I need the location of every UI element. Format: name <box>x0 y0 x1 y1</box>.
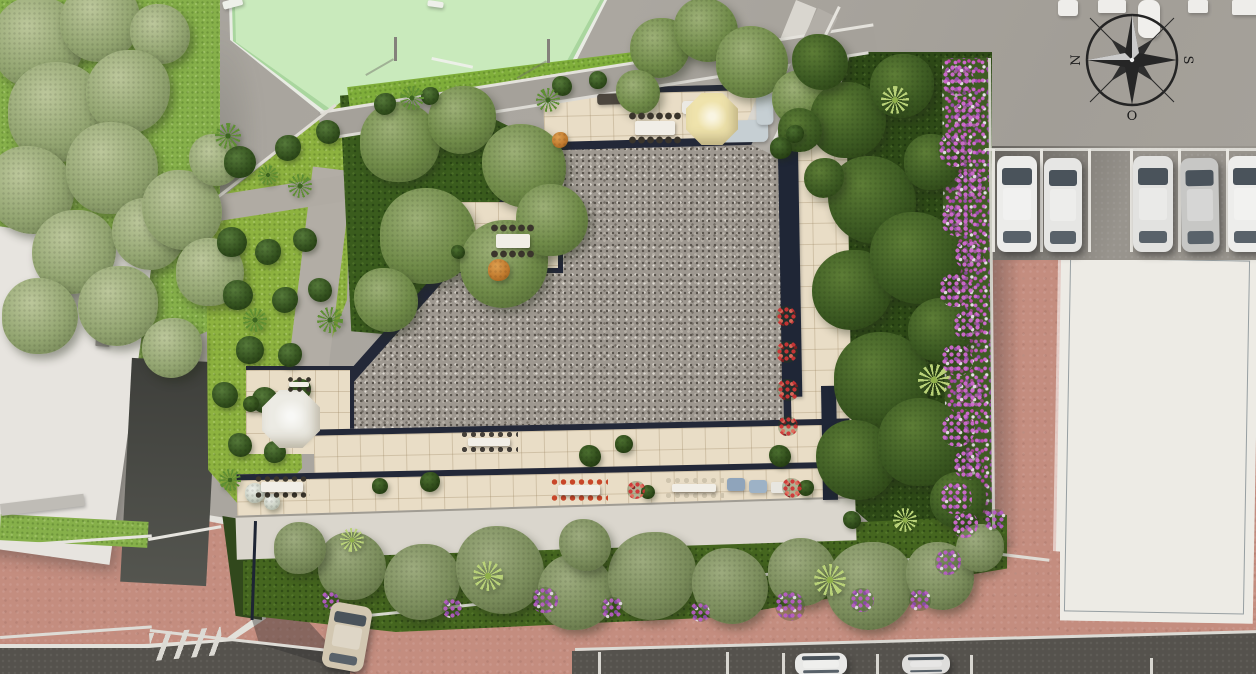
trimmed-bush <box>308 278 332 302</box>
trimmed-bush <box>236 336 264 364</box>
garden-flowers <box>775 591 805 621</box>
palm <box>243 308 267 332</box>
trimmed-bush <box>589 71 607 89</box>
sage-tree <box>86 50 170 134</box>
planter-shrub <box>769 445 791 467</box>
planter-shrub <box>615 435 633 453</box>
flower-border-cluster <box>940 482 972 514</box>
scene-rect <box>222 0 243 10</box>
car-window <box>1049 170 1077 186</box>
chairs <box>664 477 724 484</box>
aerial-site-plan: N S O <box>0 0 1256 674</box>
flower-border-cluster <box>941 204 973 236</box>
dining-set <box>254 475 310 499</box>
dining-table <box>261 482 302 491</box>
compass-n: N <box>1069 54 1084 65</box>
car-roof <box>1187 189 1213 221</box>
trimmed-bush <box>223 280 253 310</box>
garden-flowers <box>909 589 931 611</box>
olive-tree <box>559 519 611 571</box>
scene-rect <box>756 93 774 125</box>
car-roof <box>331 623 363 650</box>
garden-flowers <box>601 597 623 619</box>
orange-shrub <box>488 259 510 281</box>
flower-border-cluster <box>941 344 973 376</box>
trimmed-bush <box>228 433 252 457</box>
scene-rect <box>1232 0 1256 15</box>
palm <box>400 86 424 110</box>
red-flowers <box>782 478 802 498</box>
planter-shrub <box>451 245 465 259</box>
curb-line <box>1040 149 1043 252</box>
planter-shrub <box>372 478 388 494</box>
car-roof <box>1139 188 1166 221</box>
flower-border-cluster <box>938 133 972 167</box>
parked-car <box>1228 156 1256 252</box>
curb-line <box>992 149 995 252</box>
dining-set <box>664 477 724 499</box>
curb-line <box>1088 149 1091 252</box>
trimmed-bush <box>275 135 301 161</box>
light-palm <box>881 86 909 114</box>
flower-border-cluster <box>941 413 975 447</box>
curb-line <box>598 652 601 674</box>
center-tree <box>616 70 660 114</box>
curb-line <box>394 37 397 61</box>
trimmed-bush <box>272 287 298 313</box>
curb-line <box>547 39 550 63</box>
car-window <box>1003 231 1030 243</box>
dining-table <box>496 234 530 248</box>
red-flowers <box>778 416 798 436</box>
car-roof <box>1234 188 1256 221</box>
light-palm <box>814 564 846 596</box>
chairs <box>490 248 536 260</box>
car-roof <box>910 660 943 667</box>
curb-line <box>970 655 973 674</box>
scene-rect <box>0 494 85 516</box>
curb-line <box>1150 658 1153 674</box>
center-tree <box>354 268 418 332</box>
red-flowers <box>776 306 796 326</box>
dining-set <box>286 377 312 392</box>
flower-border-cluster <box>942 64 974 96</box>
flower-border-cluster <box>953 310 983 340</box>
dining-set <box>490 222 536 260</box>
parked-car <box>997 156 1037 252</box>
scene-rect <box>749 480 767 493</box>
palm <box>317 307 343 333</box>
curb-line <box>985 148 1256 151</box>
street-car <box>321 601 374 673</box>
parked-car <box>1133 156 1173 252</box>
compass-rose: N S O <box>1062 0 1202 124</box>
flower-border-cluster <box>953 100 983 130</box>
scene-rect <box>427 0 444 8</box>
curb-line <box>251 521 257 620</box>
chairs <box>664 492 724 499</box>
dining-set <box>460 431 518 453</box>
planter-shrub <box>843 511 861 529</box>
curb-line <box>876 654 879 674</box>
curb-line <box>431 57 473 68</box>
dining-table <box>289 382 308 388</box>
chairs <box>490 222 536 234</box>
orange-shrub <box>552 132 568 148</box>
flower-border-cluster <box>954 240 984 270</box>
flower-border-cluster <box>955 170 985 200</box>
garden-flowers <box>850 588 874 612</box>
dining-table <box>672 484 716 492</box>
sage-tree <box>142 318 202 378</box>
curb-line <box>148 525 221 541</box>
dining-table <box>635 121 675 135</box>
scene-rect <box>727 478 745 491</box>
car-window <box>910 669 943 672</box>
light-palm <box>340 528 364 552</box>
car-roof <box>1003 188 1030 221</box>
curb-line <box>726 652 729 674</box>
trimmed-bush <box>293 228 317 252</box>
curb-line <box>782 653 785 674</box>
trimmed-bush <box>224 146 256 178</box>
dining-table <box>558 485 601 494</box>
chairs <box>460 431 518 438</box>
street-car <box>902 654 950 674</box>
car-window <box>1185 170 1213 186</box>
dining-set <box>628 110 682 146</box>
red-flowers <box>777 379 799 401</box>
light-palm <box>893 508 917 532</box>
parked-car <box>1044 158 1082 252</box>
palm <box>258 165 278 185</box>
flower-border-cluster <box>953 450 983 480</box>
sage-tree <box>2 278 78 354</box>
trimmed-bush <box>255 239 281 265</box>
palm <box>219 469 241 491</box>
trimmed-bush <box>278 343 302 367</box>
curb-line <box>365 58 394 76</box>
car-window <box>328 653 358 666</box>
compass-s: S <box>1180 56 1195 65</box>
white-umbrella <box>262 390 320 448</box>
planter-shrub <box>420 472 440 492</box>
dining-set <box>550 478 608 502</box>
planter-shrub <box>579 445 601 467</box>
car-window <box>1139 231 1166 243</box>
flower-border-cluster <box>939 273 973 307</box>
car-window <box>1234 231 1256 243</box>
flower-border-cluster <box>955 380 985 410</box>
light-palm <box>473 561 503 591</box>
curb-line <box>0 625 152 639</box>
chairs <box>254 491 310 499</box>
compass-o: O <box>1127 109 1138 124</box>
dining-table <box>468 438 511 446</box>
chairs <box>286 387 312 392</box>
car-window <box>1138 168 1168 184</box>
garden-flowers <box>442 598 462 618</box>
car-roof <box>803 660 838 668</box>
car-window <box>908 656 944 660</box>
olive-tree <box>274 522 326 574</box>
palm <box>288 174 312 198</box>
trimmed-bush <box>212 382 238 408</box>
palm <box>215 123 241 149</box>
car-window <box>1050 231 1076 243</box>
chairs <box>628 110 682 122</box>
trimmed-bush <box>316 120 340 144</box>
car-roof <box>1050 189 1076 221</box>
parked-car <box>1180 158 1220 253</box>
car-window <box>1002 168 1032 184</box>
garden-flowers <box>690 602 710 622</box>
curb-line <box>988 58 995 536</box>
curb-line <box>0 534 152 548</box>
dark-tree <box>792 34 848 90</box>
trimmed-bush <box>217 227 247 257</box>
chairs <box>460 446 518 453</box>
chairs <box>550 494 608 502</box>
curb-line <box>150 629 349 654</box>
palm <box>536 88 560 112</box>
car-window <box>803 670 838 673</box>
garden-flowers <box>532 587 558 613</box>
garden-flowers <box>984 509 1006 531</box>
curb-line <box>575 630 1256 651</box>
chairs <box>628 134 682 146</box>
car-window <box>1233 168 1256 184</box>
street-car <box>795 653 847 674</box>
car-window <box>1188 231 1214 244</box>
